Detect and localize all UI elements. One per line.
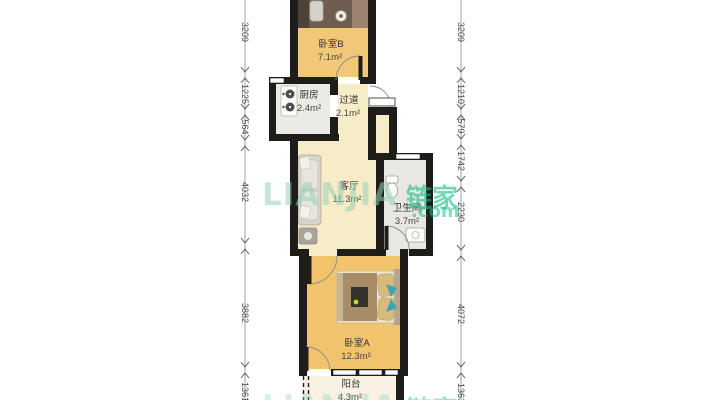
dim-left-2: 1225 <box>240 84 250 104</box>
stove-icon <box>281 86 297 116</box>
stool-dot <box>339 14 343 18</box>
room-label-living: 客厅 <box>339 180 359 192</box>
wall <box>269 134 339 141</box>
window-icon <box>270 78 284 83</box>
washbasin-icon <box>406 228 425 242</box>
room-label-bathroom: 卫生间 <box>393 202 422 214</box>
dimension-rail-left: 3209 1225 564 4032 3882 1361 <box>240 0 250 400</box>
dim-left-4: 4032 <box>240 182 250 202</box>
door-leaf-bedroom-b <box>359 56 363 80</box>
wall <box>330 77 338 95</box>
toilet-icon <box>386 176 398 198</box>
window-icon <box>396 154 420 159</box>
wall <box>409 249 433 256</box>
wall <box>290 134 298 256</box>
door-leaf-bathroom <box>385 226 389 250</box>
wall <box>426 153 433 256</box>
wall <box>376 160 384 249</box>
room-label-balcony: 阳台 <box>341 378 360 390</box>
floor-plan-canvas: 卧室B 7.1m² 厨房 2.4m² 过道 2.1m² 客厅 11.3m² 卫生… <box>0 0 710 400</box>
dim-right-2: 1210 <box>456 84 466 104</box>
room-foyer-floor <box>376 112 389 160</box>
room-area-living: 11.3m² <box>333 194 362 205</box>
wall <box>330 117 338 141</box>
dim-left-5: 3882 <box>240 303 250 323</box>
dim-left-1: 3209 <box>240 22 250 42</box>
burner-dot <box>289 93 291 95</box>
room-area-balcony: 4.3m² <box>338 392 362 400</box>
dim-right-4: 1742 <box>456 151 466 171</box>
dim-left-6: 1361 <box>240 382 250 400</box>
toilet-tank <box>386 176 398 183</box>
dim-left-3: 564 <box>240 119 250 134</box>
pillow-icon <box>310 1 323 21</box>
window-icon <box>333 370 356 375</box>
wall <box>290 249 309 256</box>
door-leaf-balcony <box>304 347 309 371</box>
bedroom-b-bed-icon <box>298 0 368 28</box>
wall <box>368 0 376 84</box>
floor-plan: 卧室B 7.1m² 厨房 2.4m² 过道 2.1m² 客厅 11.3m² 卫生… <box>0 0 710 400</box>
dim-right-1: 3209 <box>456 22 466 42</box>
basin-body <box>406 228 425 242</box>
burner-dot <box>289 106 291 108</box>
wall <box>290 0 298 84</box>
lamp-icon <box>304 232 312 240</box>
room-label-hallway: 过道 <box>339 94 359 106</box>
wall <box>396 376 404 400</box>
wall <box>337 249 386 256</box>
wardrobe-icon <box>298 0 309 28</box>
room-label-bedroom-a: 卧室A <box>344 337 370 349</box>
sofa-pillow <box>299 156 311 170</box>
room-area-bedroom-b: 7.1m² <box>318 52 342 63</box>
dim-right-5: 2230 <box>456 202 466 222</box>
dim-right-3: 579 <box>456 118 466 133</box>
room-area-bathroom: 3.7m² <box>395 216 419 227</box>
wall <box>389 107 397 160</box>
door-leaf-bedroom-a <box>307 256 312 284</box>
dim-right-7: 1363 <box>456 383 466 400</box>
knob-dot <box>282 106 284 108</box>
tray-dot <box>354 300 359 305</box>
toilet-bowl <box>387 183 398 198</box>
wall <box>269 77 276 141</box>
double-bed-icon <box>337 269 401 325</box>
sofa-pillow <box>299 205 311 219</box>
window-icon <box>359 370 382 375</box>
wall <box>400 249 408 376</box>
dimension-rail-right: 3209 1210 579 1742 2230 4072 1363 <box>456 0 466 400</box>
room-area-hallway: 2.1m² <box>336 108 360 119</box>
entry-door-leaf <box>369 98 395 106</box>
desk-icon <box>352 0 368 28</box>
dim-right-6: 4072 <box>456 304 466 324</box>
room-label-kitchen: 厨房 <box>299 89 318 101</box>
room-area-bedroom-a: 12.3m² <box>341 351 371 362</box>
bed-tray <box>351 287 368 307</box>
blanket-fold <box>337 273 343 321</box>
room-label-bedroom-b: 卧室B <box>318 38 343 50</box>
window-icon <box>385 370 398 375</box>
room-area-kitchen: 2.4m² <box>297 103 321 114</box>
knob-dot <box>282 93 284 95</box>
